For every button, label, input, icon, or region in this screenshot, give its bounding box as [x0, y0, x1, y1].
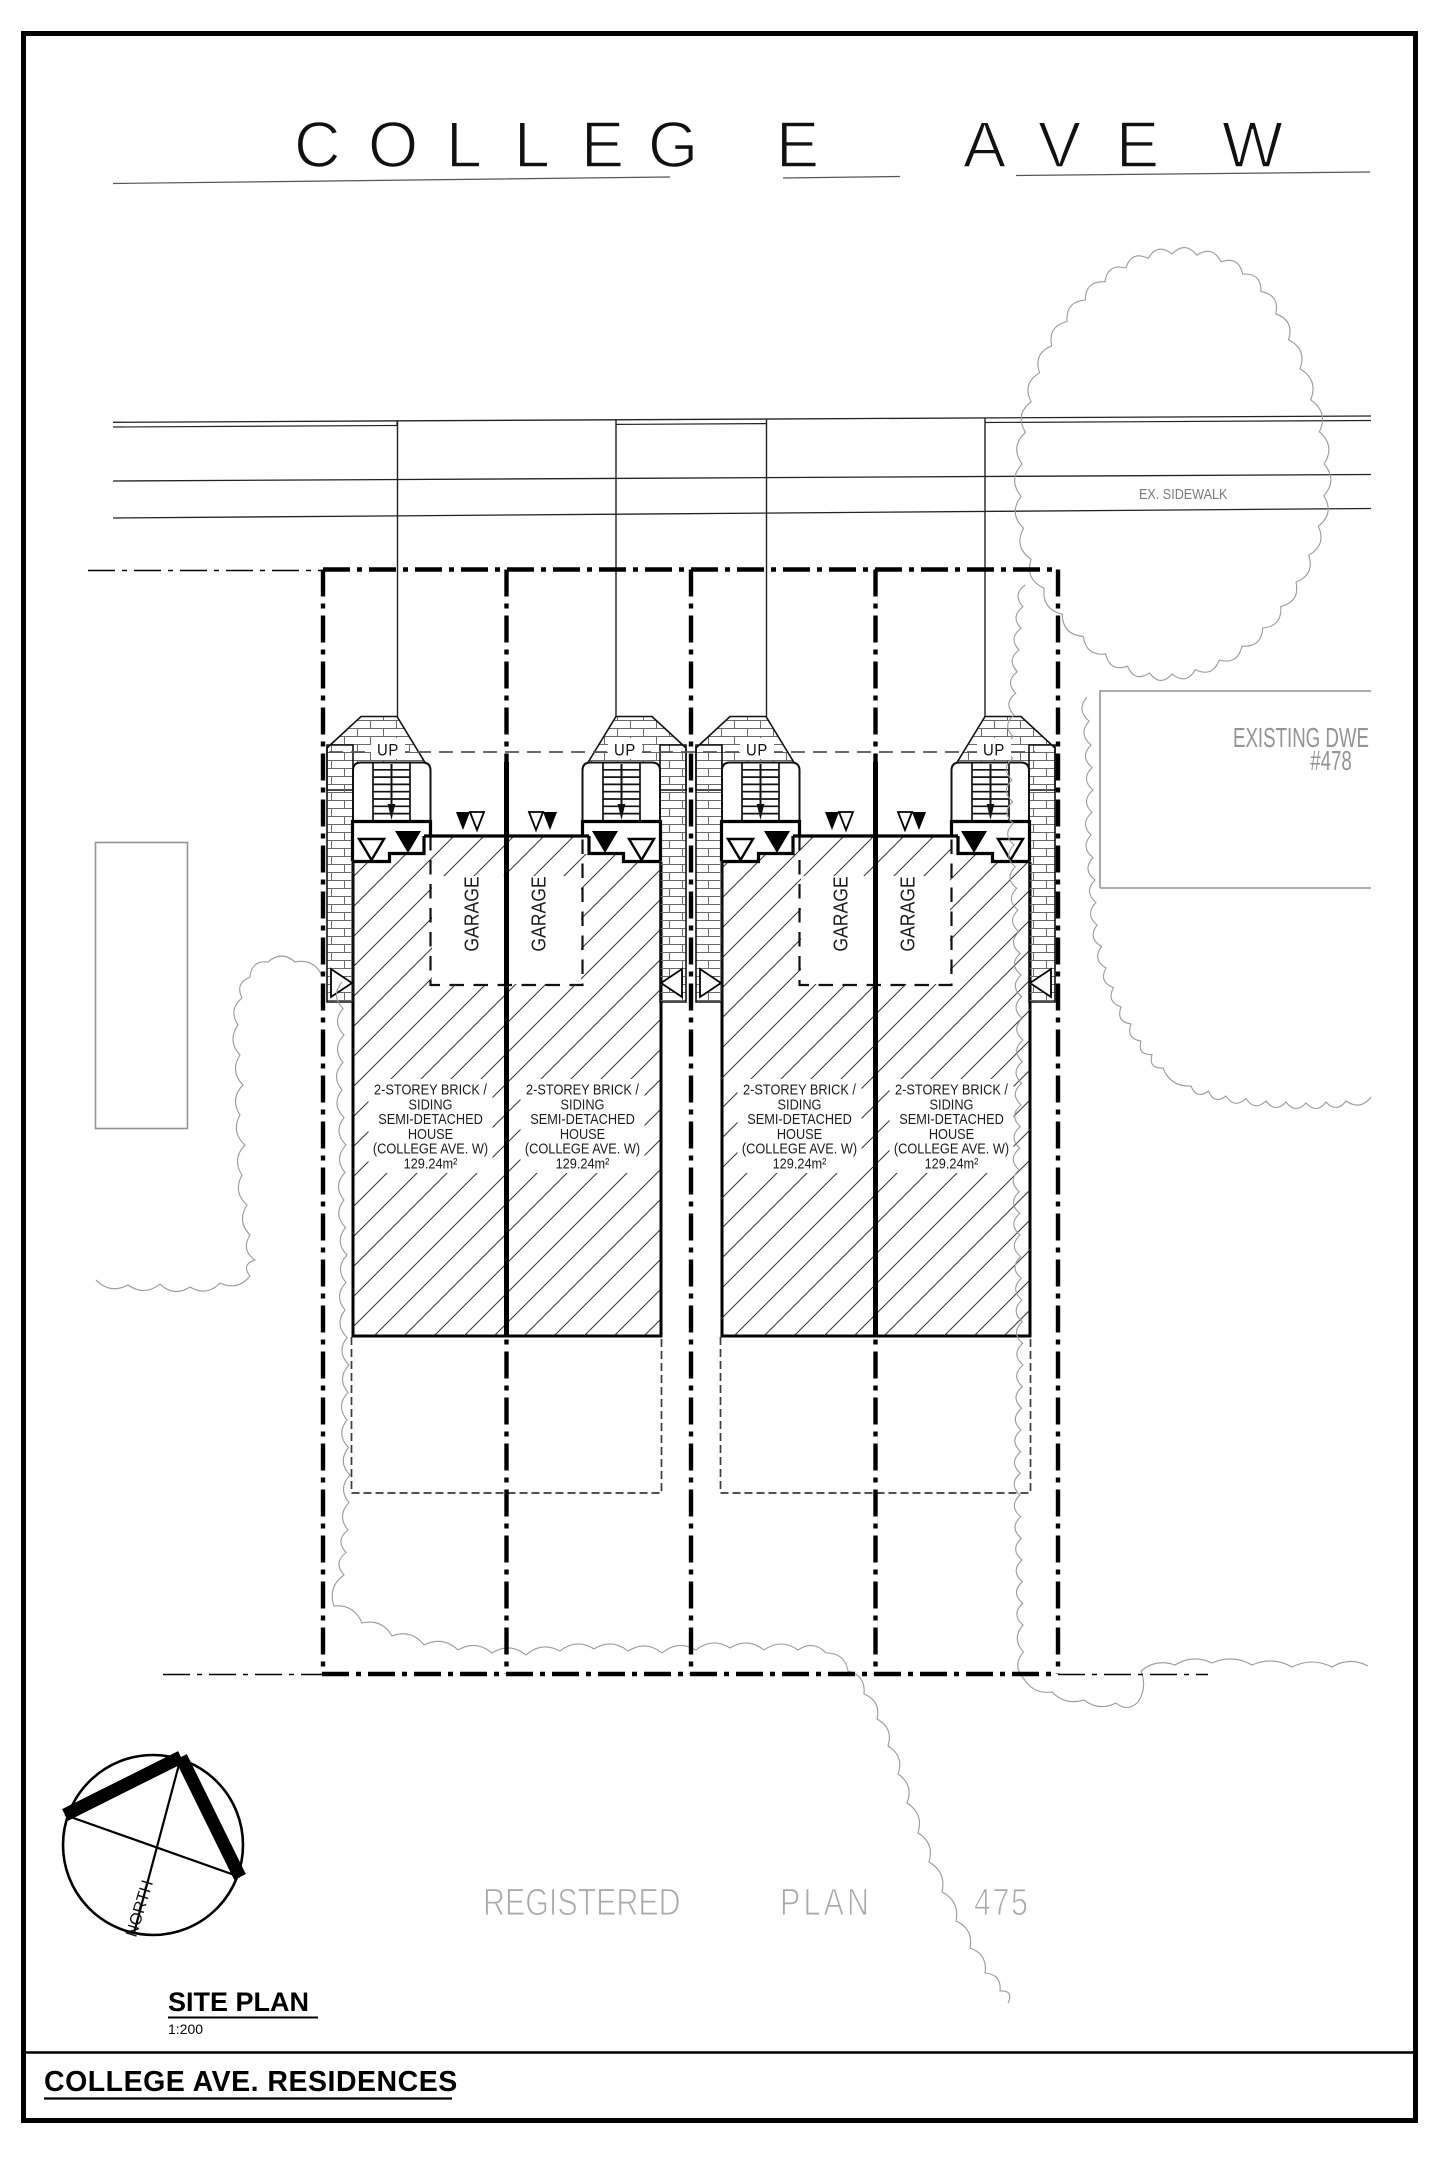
svg-text:EX. SIDEWALK: EX. SIDEWALK — [1139, 485, 1228, 502]
svg-text:1:200: 1:200 — [168, 2021, 203, 2037]
svg-text:COLLEGE AVE. RESIDENCES: COLLEGE AVE. RESIDENCES — [44, 2066, 458, 2098]
svg-text:W: W — [1222, 109, 1283, 181]
svg-text:E: E — [1116, 109, 1159, 181]
svg-text:#478: #478 — [1310, 745, 1352, 775]
svg-text:GARAGE: GARAGE — [460, 876, 482, 951]
svg-text:C: C — [294, 109, 341, 181]
svg-text:E: E — [776, 109, 819, 181]
svg-text:O: O — [368, 109, 418, 181]
svg-text:UP: UP — [746, 742, 768, 760]
svg-text:UP: UP — [614, 742, 636, 760]
svg-text:REGISTERED: REGISTERED — [483, 1882, 681, 1924]
svg-text:129.24m²: 129.24m² — [925, 1154, 979, 1171]
svg-text:GARAGE: GARAGE — [527, 876, 549, 951]
svg-text:129.24m²: 129.24m² — [404, 1154, 458, 1171]
svg-text:E: E — [581, 109, 624, 181]
svg-text:GARAGE: GARAGE — [896, 876, 918, 951]
svg-text:UP: UP — [377, 742, 399, 760]
svg-text:V: V — [1038, 109, 1081, 181]
svg-text:GARAGE: GARAGE — [829, 876, 851, 951]
svg-text:PLAN: PLAN — [780, 1882, 872, 1924]
svg-text:129.24m²: 129.24m² — [773, 1154, 827, 1171]
svg-text:SITE PLAN: SITE PLAN — [168, 1987, 309, 2017]
svg-text:G: G — [648, 109, 698, 181]
svg-text:L: L — [446, 109, 482, 181]
svg-text:A: A — [963, 109, 1006, 181]
svg-text:475: 475 — [974, 1882, 1030, 1924]
svg-text:UP: UP — [983, 742, 1005, 760]
svg-text:L: L — [514, 109, 550, 181]
svg-text:129.24m²: 129.24m² — [556, 1154, 610, 1171]
